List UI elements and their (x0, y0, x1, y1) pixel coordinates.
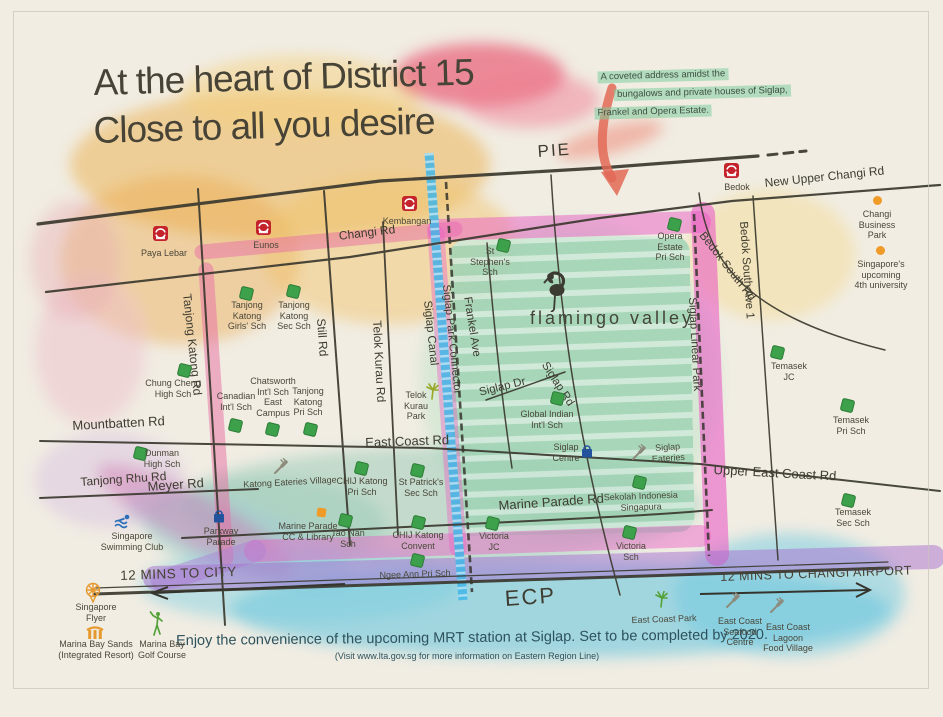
mrt-icon-bedok (724, 163, 739, 178)
school-label-tanjong-katong-girls: Tanjong Katong Girls' Sch (228, 300, 266, 332)
school-label-temasek-jc: Temasek JC (771, 361, 807, 382)
school-label-chij-katong-convent: CHIJ Katong Convent (392, 530, 443, 551)
road-label-pie: PIE (537, 140, 572, 162)
school-label-opera-estate: Opera Estate Pri Sch (655, 231, 684, 263)
school-label-global-indian: Global Indian Int'l Sch (520, 409, 573, 430)
fork-icon-siglap-eateries (630, 444, 648, 462)
note-line2: bungalows and private houses of Siglap, (614, 84, 791, 101)
landmark-label-singapore-swimming-club: Singapore Swimming Club (101, 531, 164, 552)
landmark-icon-marine-parade-cc (316, 507, 326, 517)
flamingo-valley-location-map: At the heart of District 15 Close to all… (0, 0, 943, 717)
landmark-label-changi-business-park: Changi Business Park (859, 209, 896, 241)
landmark-label-singapore-flyer: Singapore Flyer (75, 602, 116, 623)
landmark-label-siglap-centre: Siglap Centre (552, 442, 579, 463)
landmark-label-lagoon-food-village: East Coast Lagoon Food Village (763, 622, 813, 654)
road-label-ecp: ECP (504, 582, 557, 612)
landmark-label-east-coast-park: East Coast Park (631, 613, 696, 626)
school-label-dunman: Dunman High Sch (144, 448, 181, 469)
school-label-temasek-pri: Temasek Pri Sch (833, 415, 869, 436)
landmark-label-siglap-eateries: Siglap Eateries (651, 441, 685, 464)
school-label-chatsworth: Chatsworth Int'l Sch East Campus (250, 376, 296, 418)
landmark-label-marine-parade-cc: Marine Parade CC & Library (278, 521, 337, 542)
fork-icon-lagoon-food-village (768, 597, 786, 615)
landmark-label-4th-university: Singapore's upcoming 4th university (854, 259, 907, 291)
road-label-east-coast-rd: East Coast Rd (365, 432, 449, 450)
note-callout: A coveted address amidst the bungalows a… (597, 61, 791, 120)
school-label-chung-cheng: Chung Cheng High Sch (145, 378, 201, 399)
school-label-st-stephens: St Stephen's Sch (470, 246, 510, 278)
school-label-sekolah-indonesia: Sekolah Indonesia Singapura (604, 490, 679, 514)
school-label-st-patricks: St Patrick's Sec Sch (399, 477, 444, 498)
fork-icon-katong-eateries (272, 458, 290, 476)
school-label-chij-katong-pri: CHIJ Katong Pri Sch (336, 476, 387, 497)
note-line3: Frankel and Opera Estate. (594, 105, 712, 120)
mrt-icon-paya-lebar (153, 226, 168, 241)
mrt-label-paya-lebar: Paya Lebar (141, 248, 187, 258)
school-label-temasek-sec: Temasek Sec Sch (835, 507, 871, 528)
footer-line2: (Visit www.lta.gov.sg for more informati… (335, 651, 599, 661)
shopping-bag-icon-siglap-centre (580, 443, 594, 459)
mrt-label-kembangan: Kembangan (383, 216, 432, 226)
school-label-victoria-sch: Victoria Sch (616, 541, 646, 562)
landmark-label-seafood-centre: East Coast Seafood Centre (718, 616, 762, 648)
mrt-label-bedok: Bedok (724, 182, 750, 192)
landmark-label-telok-kurau-park: Telok Kurau Park (404, 390, 428, 422)
mrt-icon-kembangan (402, 196, 417, 211)
landmark-label-marina-bay-golf: Marina Bay Golf Course (138, 639, 186, 660)
map-artwork (0, 0, 943, 717)
school-label-victoria-jc: Victoria JC (479, 531, 509, 552)
ferris-wheel-icon-singapore-flyer (84, 582, 102, 604)
palm-tree-icon-east-coast-park (653, 591, 669, 609)
flamingo-icon (541, 266, 567, 312)
landmark-label-parkway-parade: Parkway Parade (204, 526, 239, 547)
logo-wordmark: flamingo valley (530, 308, 694, 329)
school-label-tanjong-katong-pri: Tanjong Katong Pri Sch (292, 386, 324, 418)
swimmer-icon-singapore-swimming-club (113, 514, 135, 529)
mrt-icon-eunos (256, 220, 271, 235)
marina-bay-sands-icon (85, 624, 105, 640)
landmark-label-marina-bay-sands: Marina Bay Sands (Integrated Resort) (58, 639, 134, 660)
landmark-dot-4th-university (876, 246, 885, 255)
road-label-still-rd: Still Rd (314, 318, 331, 357)
golfer-icon-marina-bay-golf (148, 611, 166, 639)
mrt-label-eunos: Eunos (253, 240, 279, 250)
fork-icon-seafood-centre (724, 592, 742, 610)
school-label-tanjong-katong-sec: Tanjong Katong Sec Sch (277, 300, 311, 332)
landmark-dot-changi-business-park (873, 196, 882, 205)
note-line1: A coveted address amidst the (597, 68, 728, 83)
shopping-bag-icon-parkway-parade (212, 508, 226, 524)
